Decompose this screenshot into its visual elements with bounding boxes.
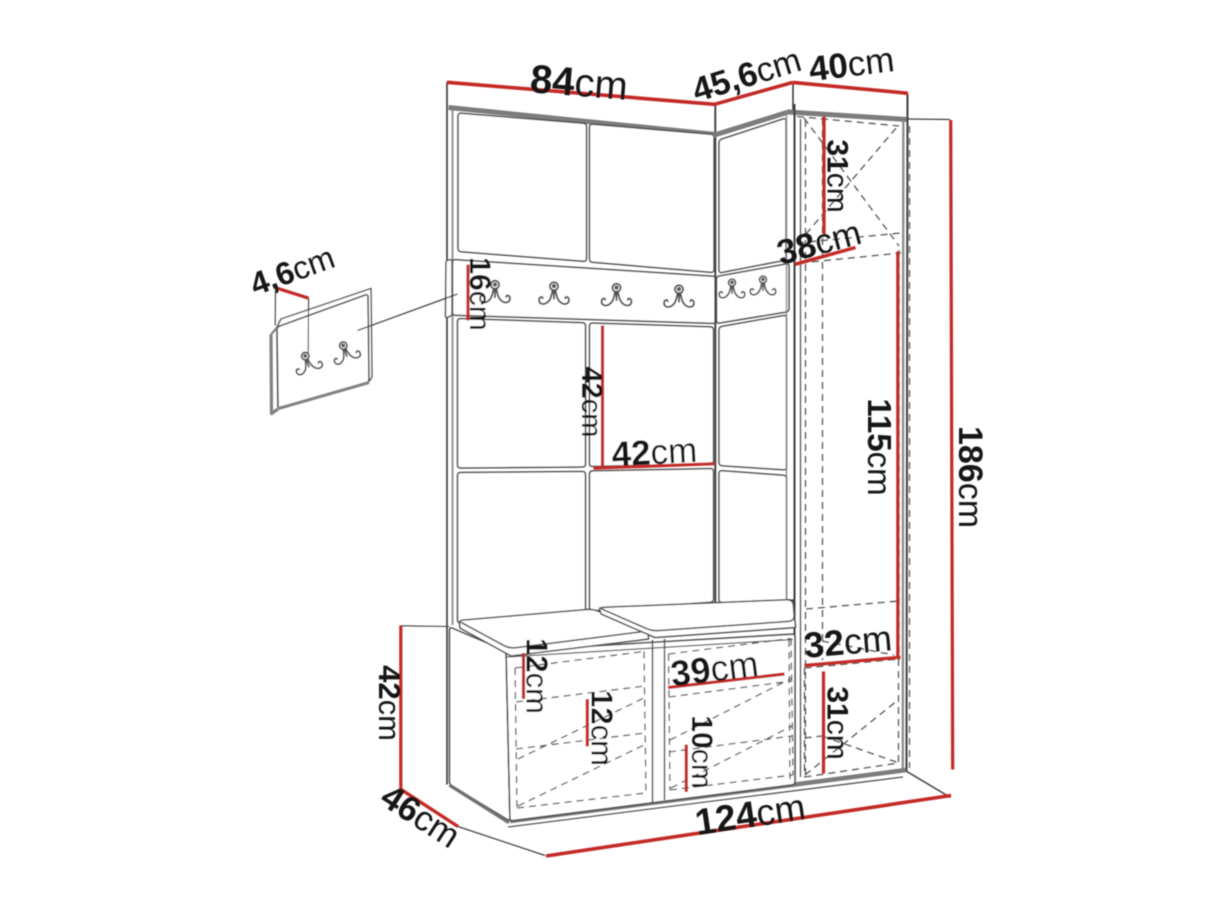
svg-text:84cm: 84cm: [529, 57, 630, 109]
svg-text:42cm: 42cm: [611, 431, 699, 474]
svg-text:16cm: 16cm: [463, 257, 496, 330]
svg-text:42cm: 42cm: [372, 665, 407, 741]
svg-text:115cm: 115cm: [861, 398, 898, 495]
svg-text:32cm: 32cm: [802, 617, 893, 666]
svg-text:31cm: 31cm: [821, 686, 854, 759]
svg-text:186cm: 186cm: [951, 426, 989, 528]
svg-text:12cm: 12cm: [585, 690, 620, 766]
svg-text:12cm: 12cm: [520, 638, 555, 714]
svg-text:31cm: 31cm: [821, 139, 854, 212]
svg-text:10cm: 10cm: [685, 715, 718, 788]
svg-text:42cm: 42cm: [575, 367, 607, 438]
